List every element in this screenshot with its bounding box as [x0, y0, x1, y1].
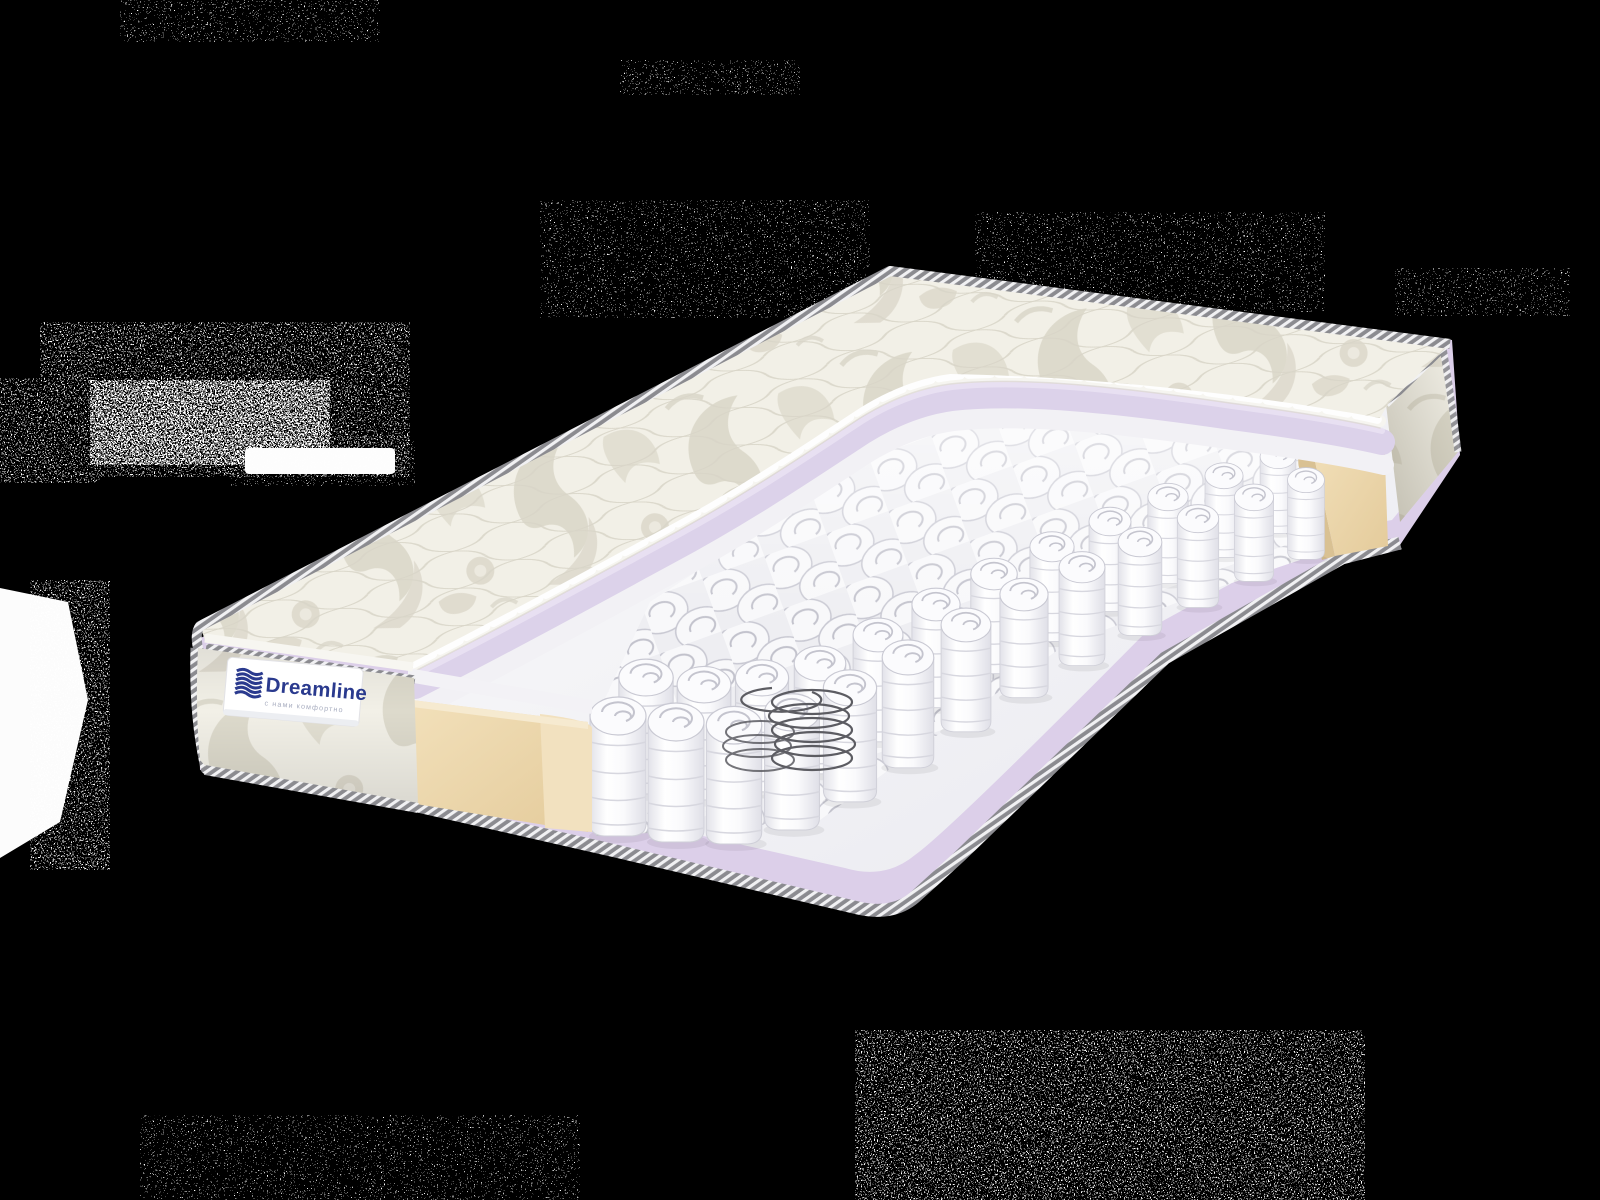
mattress-cutaway-photo: Dreamline с нами комфортно	[0, 0, 1600, 1200]
brand-label: Dreamline с нами комфортно	[223, 657, 369, 727]
mattress-cutaway-image: Dreamline с нами комфортно	[0, 0, 1600, 1200]
